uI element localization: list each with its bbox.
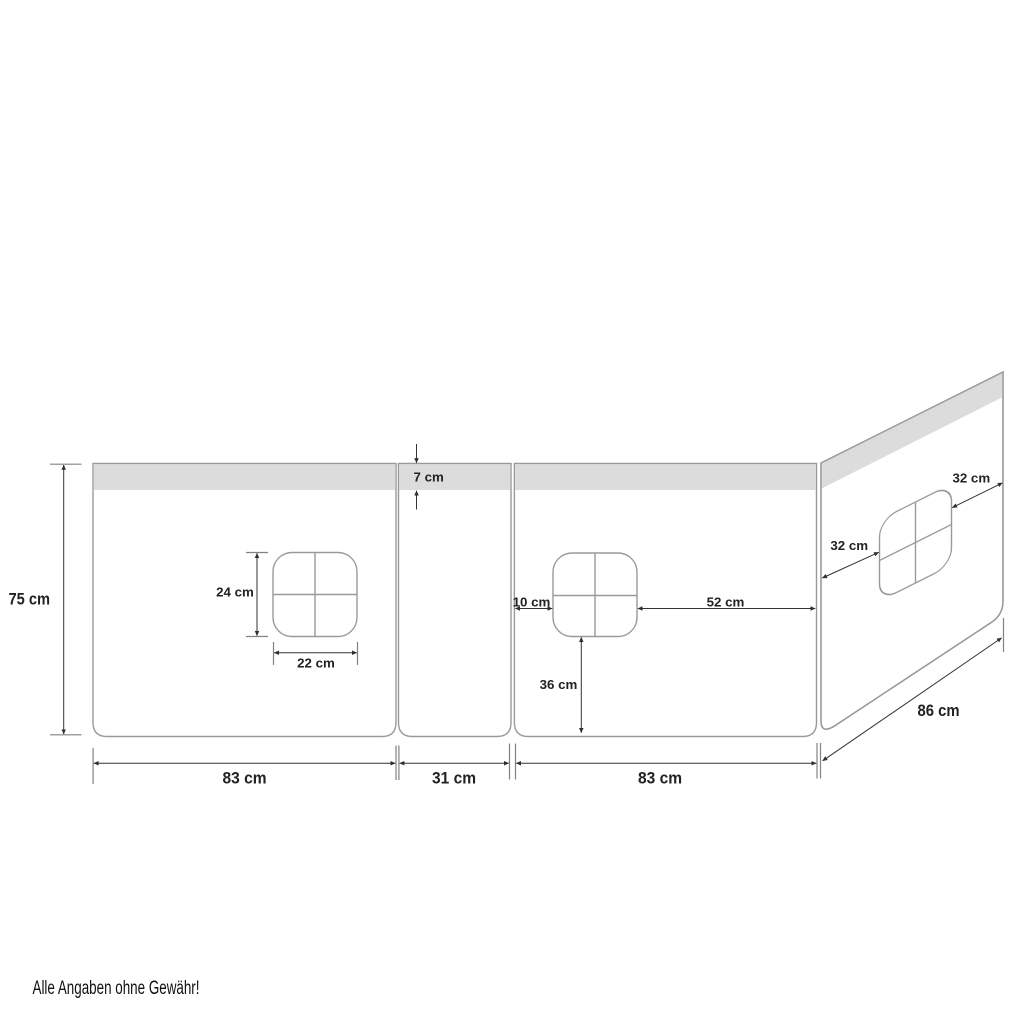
svg-text:52 cm: 52 cm — [707, 595, 745, 610]
svg-text:24 cm: 24 cm — [216, 585, 254, 600]
svg-text:22 cm: 22 cm — [297, 656, 335, 671]
svg-text:Alle Angaben ohne Gewähr!: Alle Angaben ohne Gewähr! — [33, 978, 200, 999]
svg-text:7 cm: 7 cm — [414, 470, 444, 485]
svg-text:32 cm: 32 cm — [952, 471, 990, 486]
svg-text:10 cm: 10 cm — [513, 595, 551, 610]
svg-text:32 cm: 32 cm — [830, 538, 868, 553]
svg-text:83 cm: 83 cm — [638, 769, 682, 787]
svg-text:83 cm: 83 cm — [223, 769, 267, 787]
svg-text:75 cm: 75 cm — [9, 591, 51, 609]
svg-text:31 cm: 31 cm — [432, 769, 476, 787]
svg-text:86 cm: 86 cm — [918, 702, 960, 720]
svg-text:36 cm: 36 cm — [540, 677, 578, 692]
